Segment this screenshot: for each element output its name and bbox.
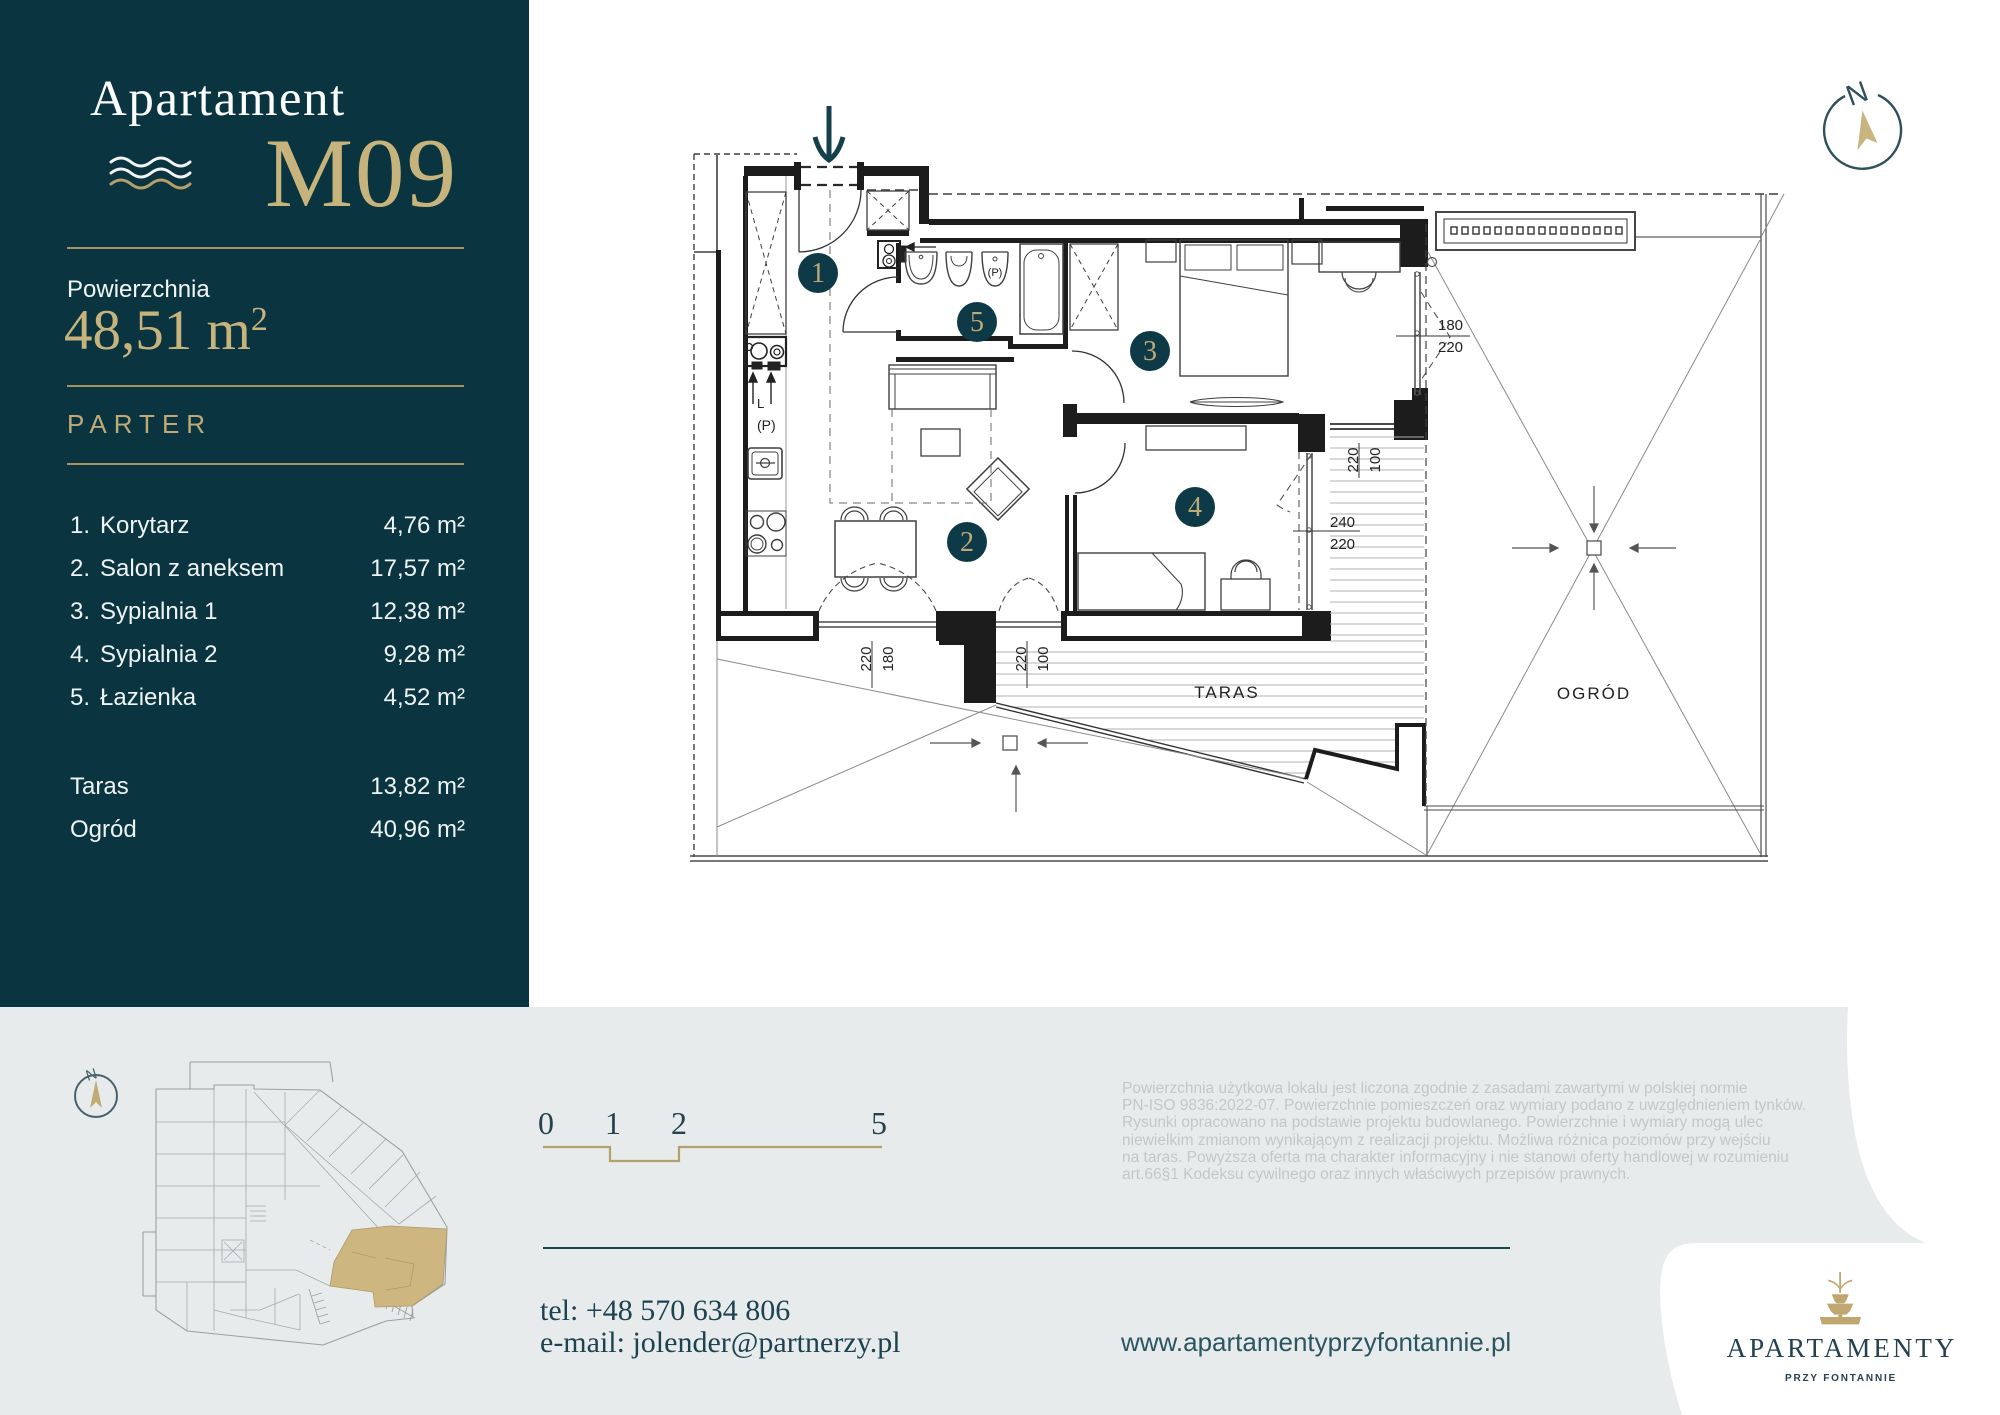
svg-text:4,52 m²: 4,52 m² [384,684,465,711]
svg-text:17,57 m²: 17,57 m² [370,555,465,582]
svg-text:(P): (P) [757,417,776,433]
svg-text:2: 2 [671,1105,687,1141]
svg-text:220: 220 [1013,646,1030,671]
svg-text:art.66§1 Kodeksu cywilnego ora: art.66§1 Kodeksu cywilnego oraz innych w… [1122,1166,1630,1183]
svg-text:na taras. Powyższa oferta ma c: na taras. Powyższa oferta ma charakter i… [1122,1149,1789,1166]
svg-text:PARTER: PARTER [67,409,212,439]
svg-text:OGRÓD: OGRÓD [1557,684,1631,703]
svg-text:100: 100 [1035,646,1052,671]
svg-text:TARAS: TARAS [1194,683,1259,702]
svg-text:220: 220 [1330,536,1355,553]
svg-text:1: 1 [605,1105,621,1141]
svg-text:e-mail: jolender@partnerzy.pl: e-mail: jolender@partnerzy.pl [540,1326,901,1359]
svg-text:2: 2 [960,527,974,558]
svg-text:220: 220 [1438,339,1463,356]
svg-text:220: 220 [1345,447,1362,472]
svg-text:Salon z aneksem: Salon z aneksem [100,555,284,582]
svg-text:niewielkim zmianom wynikającym: niewielkim zmianom wynikającym z realiza… [1122,1132,1771,1149]
svg-text:Ogród: Ogród [70,816,137,843]
svg-text:5: 5 [871,1105,887,1141]
svg-text:M09: M09 [265,119,458,228]
svg-text:48,51 m2: 48,51 m2 [64,299,268,362]
svg-text:L: L [757,396,764,411]
svg-text:PN-ISO 9836:2022-07. Powierzch: PN-ISO 9836:2022-07. Powierzchnie pomies… [1122,1097,1806,1114]
svg-text:Powierzchnia użytkowa lokalu j: Powierzchnia użytkowa lokalu jest liczon… [1122,1080,1747,1097]
svg-text:13,82 m²: 13,82 m² [370,773,465,800]
svg-text:www.apartamentyprzyfontannie.p: www.apartamentyprzyfontannie.pl [1120,1327,1511,1357]
svg-text:3.: 3. [70,598,90,625]
svg-text:tel: +48 570 634 806: tel: +48 570 634 806 [540,1294,790,1327]
svg-text:220: 220 [858,646,875,671]
svg-text:2.: 2. [70,555,90,582]
svg-text:5.: 5. [70,684,90,711]
svg-text:Sypialnia 2: Sypialnia 2 [100,641,217,668]
svg-text:4: 4 [1188,492,1202,523]
svg-text:4.: 4. [70,641,90,668]
svg-text:Łazienka: Łazienka [100,684,197,711]
svg-text:PRZY FONTANNIE: PRZY FONTANNIE [1785,1373,1897,1384]
svg-text:180: 180 [1438,317,1463,334]
svg-text:1.: 1. [70,512,90,539]
svg-text:1: 1 [811,258,825,289]
svg-text:0: 0 [538,1105,554,1141]
svg-text:Rysunki opracowano na podstawi: Rysunki opracowano na podstawie projektu… [1122,1114,1763,1131]
svg-text:Taras: Taras [70,773,129,800]
svg-text:4,76 m²: 4,76 m² [384,512,465,539]
svg-text:Korytarz: Korytarz [100,512,189,539]
svg-text:100: 100 [1367,447,1384,472]
svg-text:240: 240 [1330,514,1355,531]
svg-text:9,28 m²: 9,28 m² [384,641,465,668]
svg-text:5: 5 [970,307,984,338]
svg-text:3: 3 [1143,336,1157,367]
svg-text:Sypialnia 1: Sypialnia 1 [100,598,217,625]
svg-text:40,96 m²: 40,96 m² [370,816,465,843]
svg-text:(P): (P) [988,267,1003,279]
svg-text:12,38 m²: 12,38 m² [370,598,465,625]
svg-text:180: 180 [880,646,897,671]
svg-text:APARTAMENTY: APARTAMENTY [1727,1333,1958,1363]
